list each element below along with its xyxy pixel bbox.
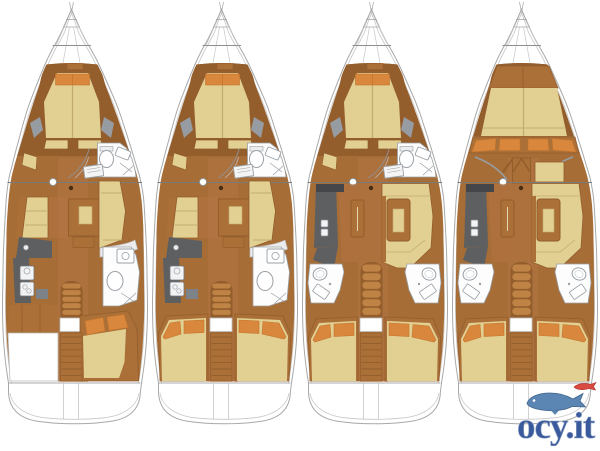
svg-text:ocy.it: ocy.it [517, 406, 596, 446]
